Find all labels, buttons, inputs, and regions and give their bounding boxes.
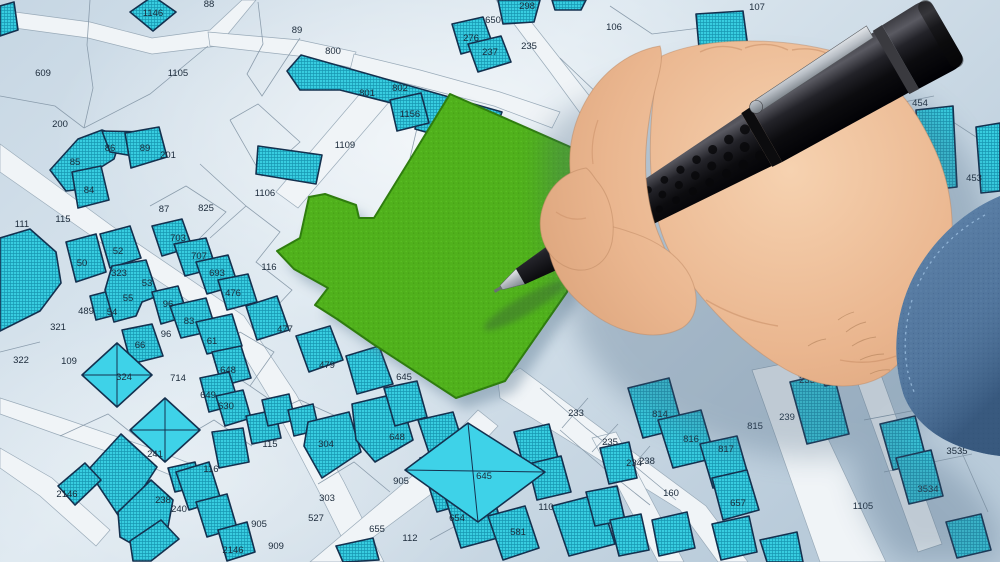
parcel-label: 87	[159, 204, 170, 215]
parcel-label: 609	[35, 68, 51, 79]
cadastral-map-scene: 8811468960911052008008018021156110965029…	[0, 0, 1000, 562]
parcel-label: 55	[123, 293, 134, 304]
parcel-label: 66	[135, 340, 146, 351]
parcel-label: 630	[218, 401, 234, 412]
parcel-label: 110	[538, 502, 553, 513]
parcel-label: 477	[277, 324, 293, 335]
parcel-label: 648	[389, 432, 405, 443]
parcel-label: 800	[325, 46, 341, 57]
parcel-label: 111	[15, 219, 29, 230]
parcel-label: 298	[519, 1, 535, 12]
parcel-label: 489	[78, 306, 94, 317]
parcel-label: 237	[482, 47, 498, 58]
parcel-label: 84	[84, 185, 95, 196]
parcel-label: 2146	[222, 545, 243, 556]
parcel-label: 693	[209, 268, 225, 279]
parcel-label: 233	[568, 408, 584, 419]
parcel-label: 160	[663, 488, 679, 499]
parcel-label: 649	[200, 390, 216, 401]
parcel-label: 115	[55, 214, 70, 225]
parcel-label: 1109	[335, 140, 355, 151]
parcel-label: 61	[207, 336, 218, 347]
parcel-label: 240	[171, 504, 187, 515]
parcel-label: 238	[155, 495, 171, 506]
parcel-label: 116	[203, 464, 218, 475]
parcel-label: 703	[170, 233, 186, 244]
parcel-label: 96	[161, 329, 172, 340]
parcel-label: 86	[105, 143, 116, 154]
parcel-label: 116	[261, 262, 276, 273]
parcel-label: 654	[449, 513, 465, 524]
parcel-label: 321	[50, 322, 66, 333]
parcel-label: 109	[61, 356, 77, 367]
parcel-label: 276	[463, 33, 479, 44]
parcel-label: 905	[251, 519, 267, 530]
parcel-label: 1156	[400, 109, 420, 120]
parcel-label: 479	[319, 360, 335, 371]
parcel-label: 85	[70, 157, 81, 168]
parcel-label: 53	[142, 278, 153, 289]
parcel-label: 476	[225, 288, 241, 299]
parcel-label: 107	[749, 2, 765, 13]
parcel-label: 527	[308, 513, 324, 524]
parcel-label: 52	[113, 246, 124, 257]
parcel-label: 322	[13, 355, 29, 366]
map-canvas: 8811468960911052008008018021156110965029…	[0, 0, 1000, 562]
parcel-label: 801	[359, 88, 375, 99]
parcel-label: 54	[107, 307, 118, 318]
parcel-label: 655	[369, 524, 385, 535]
parcel-label: 106	[606, 22, 622, 33]
parcel-label: 89	[292, 25, 303, 36]
parcel-label: 115	[262, 439, 277, 450]
parcel-label: 1105	[168, 68, 188, 79]
parcel-label: 707	[191, 251, 207, 262]
parcel-label: 200	[52, 119, 68, 130]
parcel-label: 304	[318, 439, 334, 450]
parcel-label: 905	[393, 476, 409, 487]
parcel-label: 89	[140, 143, 151, 154]
parcel-label: 657	[730, 498, 746, 509]
parcel-label: 2146	[56, 489, 77, 500]
parcel-label: 714	[170, 373, 186, 384]
parcel-label: 650	[485, 15, 501, 26]
parcel-label: 201	[160, 150, 176, 161]
parcel-label: 323	[111, 268, 127, 279]
parcel-label: 645	[476, 471, 492, 482]
parcel-label: 235	[521, 41, 537, 52]
parcel-label: 96	[163, 299, 174, 310]
parcel-label: 816	[683, 434, 699, 445]
parcel-label: 241	[147, 449, 163, 460]
parcel-label: 581	[510, 527, 526, 538]
parcel-label: 83	[184, 316, 195, 327]
parcel-label: 1106	[255, 188, 275, 199]
parcel-label: 88	[204, 0, 215, 10]
parcel-label: 648	[220, 365, 236, 376]
parcel-label: 645	[396, 372, 412, 383]
parcel-label: 303	[319, 493, 335, 504]
parcel-label: 1146	[143, 8, 163, 19]
parcel-label: 50	[77, 258, 88, 269]
parcel-label: 802	[392, 83, 408, 94]
parcel-label: 112	[402, 533, 417, 544]
parcel-label: 324	[116, 372, 132, 383]
parcel-label: 909	[268, 541, 284, 552]
parcel-label: 234	[626, 458, 642, 469]
parcel-label: 825	[198, 203, 214, 214]
parcel-label: 235	[602, 437, 618, 448]
